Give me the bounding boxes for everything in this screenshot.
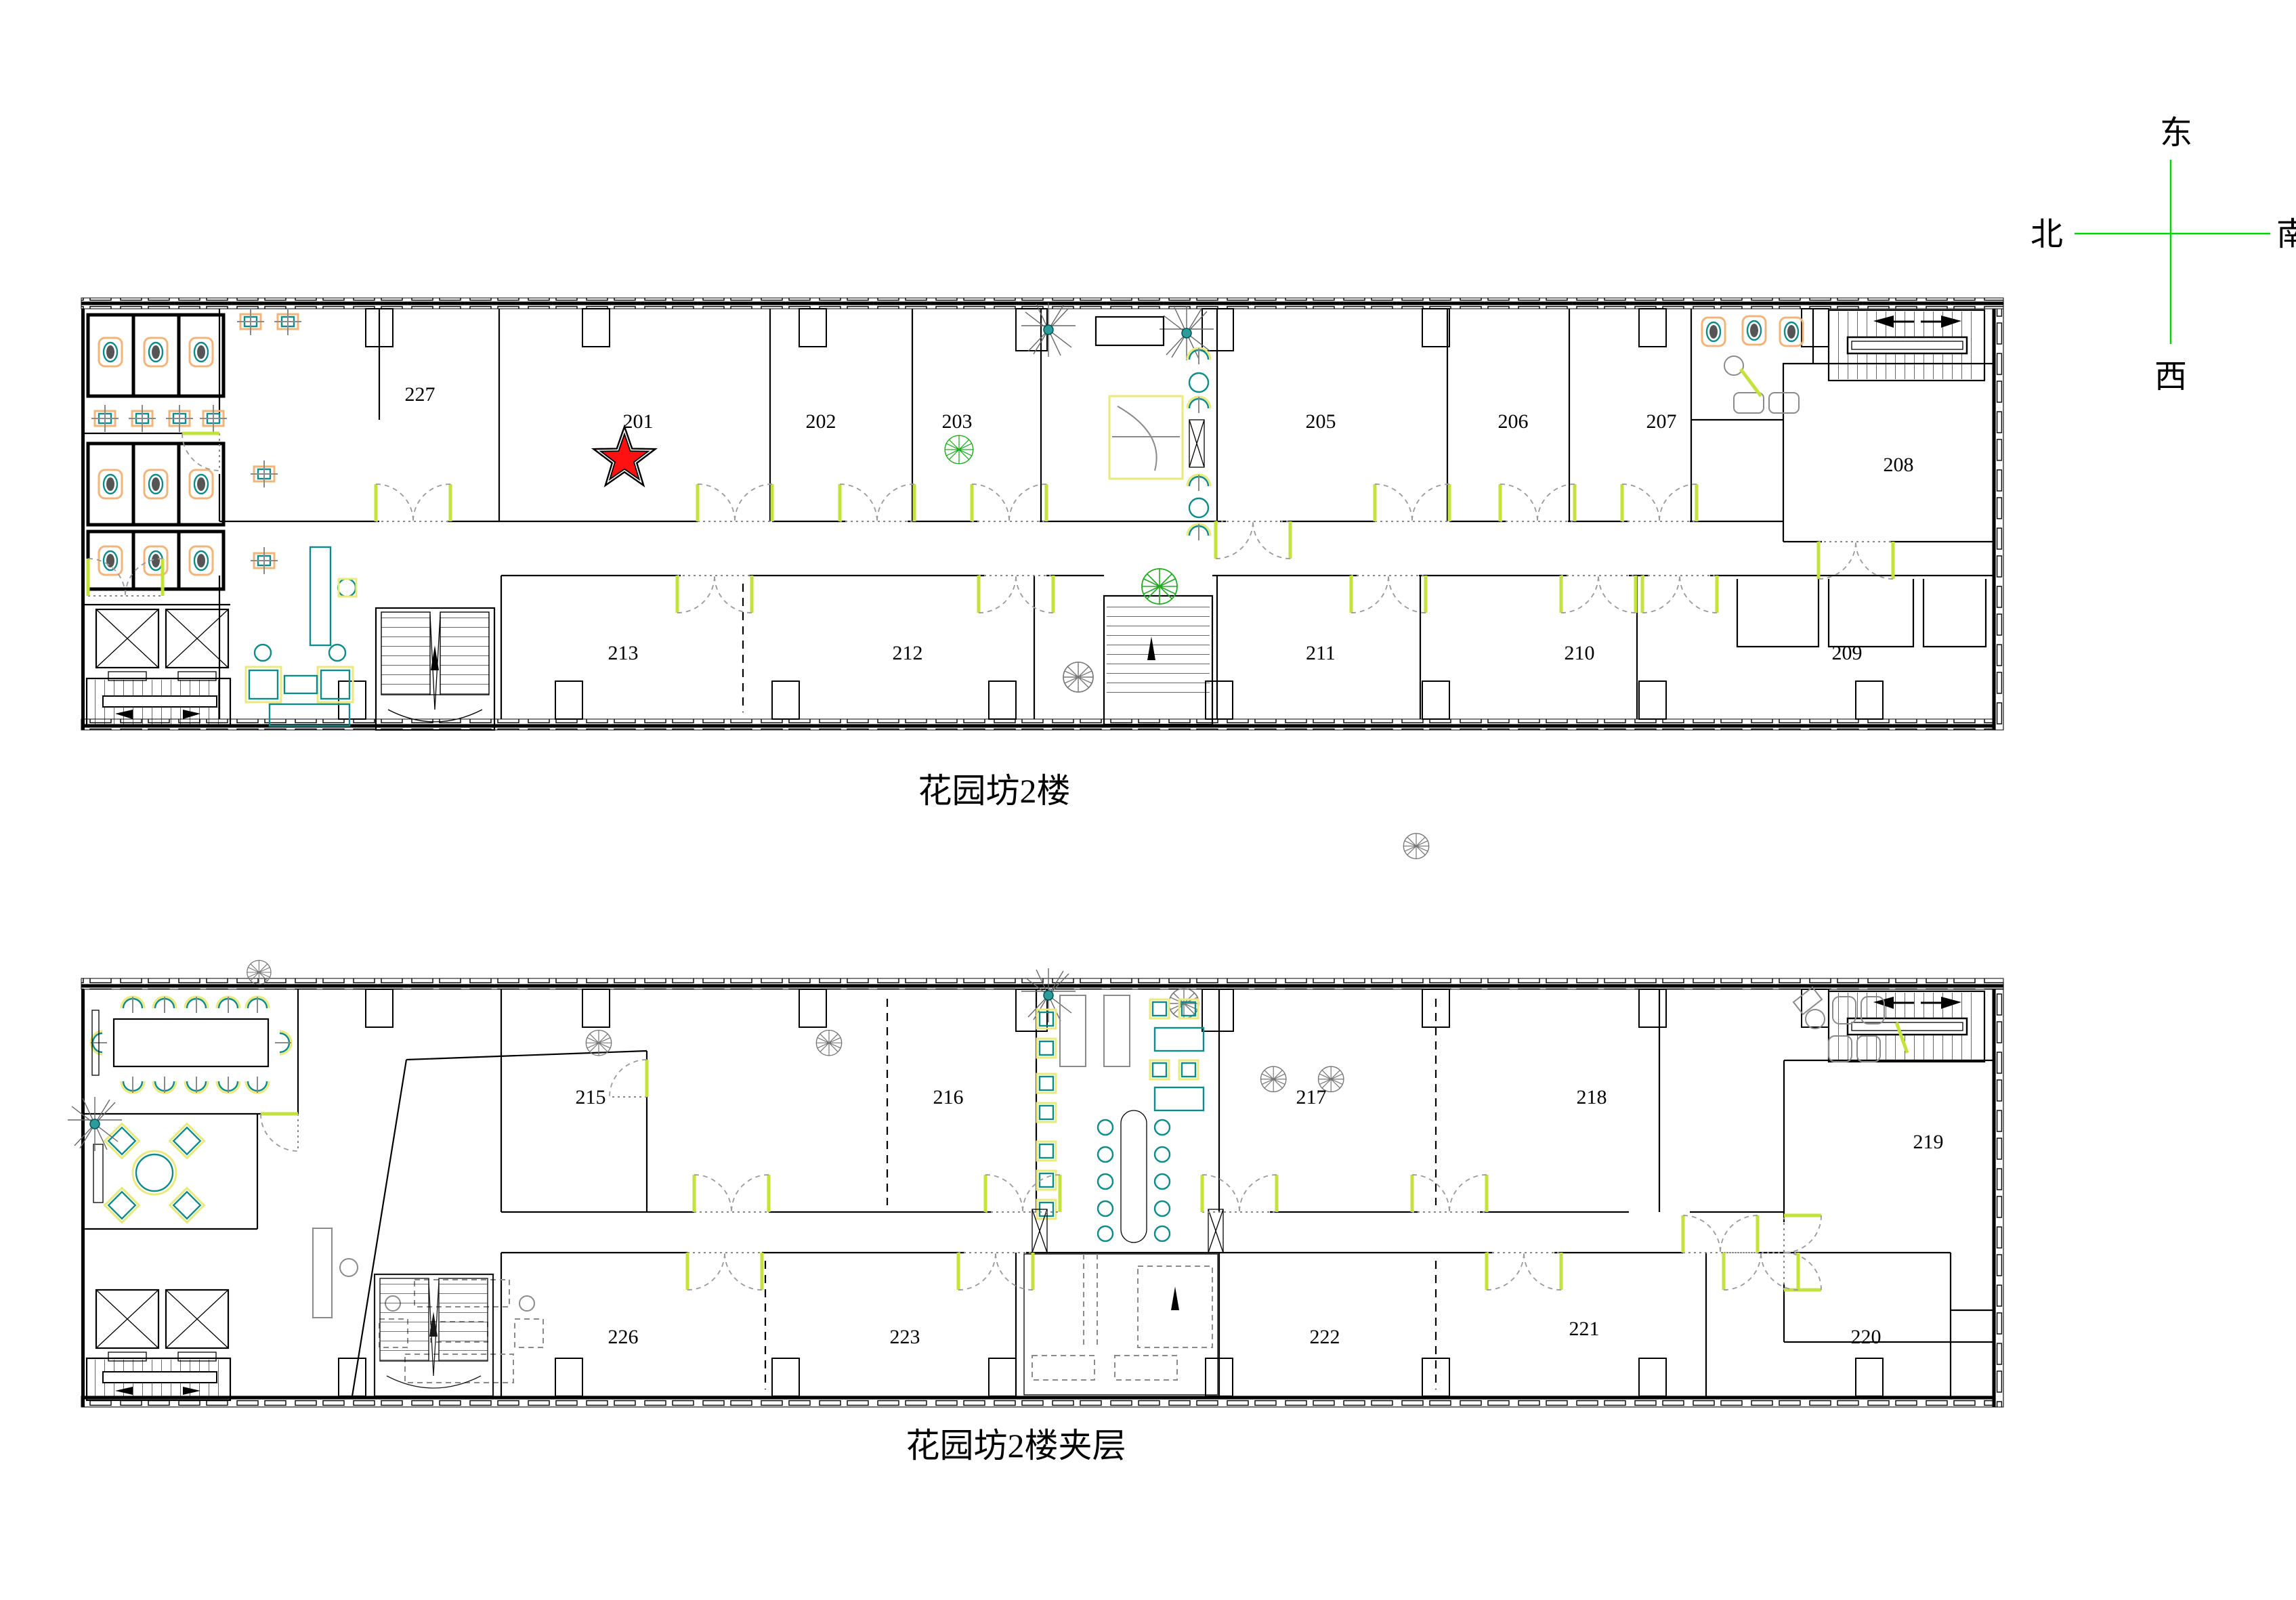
- room-label-217: 217: [1296, 1086, 1327, 1108]
- room-label-211: 211: [1306, 642, 1336, 664]
- room-label-219: 219: [1913, 1131, 1944, 1153]
- mezzanine-elevators: [96, 1290, 228, 1361]
- floor2-escalator: [1829, 310, 1984, 381]
- room-label-215: 215: [576, 1086, 606, 1108]
- mezzanine-stairs-left: [87, 1358, 230, 1400]
- mezzanine-scissor-stair: [375, 1274, 493, 1396]
- mezzanine-sitting-room: [68, 1097, 257, 1229]
- compass-west-label: 西: [2154, 359, 2187, 395]
- mezzanine-plan: 215 216 217 218 219 226 223 222 221 220 …: [68, 834, 2003, 1465]
- floor2-washroom-right: [1702, 316, 1803, 413]
- room-label-210: 210: [1565, 642, 1595, 664]
- mezzanine-columns: [339, 989, 1883, 1396]
- room-label-218: 218: [1577, 1086, 1607, 1108]
- floor2-washrooms: [84, 308, 301, 605]
- floor2-title: 花园坊2楼: [918, 772, 1071, 810]
- mezzanine-exterior-walls: [81, 978, 2003, 1407]
- compass-east-label: 东: [2160, 115, 2192, 151]
- mezzanine-conference-room: [84, 989, 298, 1114]
- room-label-220: 220: [1851, 1326, 1882, 1348]
- compass-cross-icon: [2075, 160, 2270, 344]
- floor2-plan: 227 201 202 203 205 206 207 208 213 212 …: [81, 298, 2003, 810]
- compass-north-label: 北: [2031, 217, 2063, 253]
- floor2-door-icons: [88, 433, 1893, 613]
- location-star-marker: [593, 427, 655, 485]
- room-label-209: 209: [1832, 642, 1863, 664]
- room-label-221: 221: [1569, 1318, 1600, 1340]
- compass: 东 南 西 北: [2031, 115, 2296, 395]
- room-label-207: 207: [1646, 410, 1677, 433]
- compass-south-label: 南: [2276, 217, 2296, 253]
- floor2-exterior-walls: [81, 298, 2003, 730]
- floorplan-sheet: 227 201 202 203 205 206 207 208 213 212 …: [0, 0, 2296, 1600]
- mezzanine-plant-icons: [586, 834, 1428, 1092]
- room-label-205: 205: [1306, 410, 1336, 433]
- room-label-203: 203: [942, 410, 973, 433]
- room-label-227: 227: [405, 383, 435, 406]
- room-label-201: 201: [623, 410, 654, 433]
- mezzanine-cafe: [1021, 968, 1223, 1253]
- floor2-atrium: [1021, 303, 1214, 540]
- mezzanine-room-labels: 215 216 217 218 219 226 223 222 221 220: [576, 1086, 1944, 1348]
- room-label-208: 208: [1884, 454, 1914, 476]
- floor2-elevators: [96, 609, 228, 680]
- floor2-stairs-left: [87, 678, 230, 726]
- floor2-sofa-set: [246, 645, 353, 726]
- room-label-216: 216: [933, 1086, 964, 1108]
- mezzanine-center-stair: [1024, 1254, 1218, 1395]
- mezzanine-reception-desk: [247, 960, 358, 1318]
- room-label-212: 212: [893, 642, 923, 664]
- room-label-222: 222: [1310, 1326, 1340, 1348]
- floor2-reception-desk: [310, 547, 356, 645]
- mezzanine-title: 花园坊2楼夹层: [906, 1427, 1126, 1465]
- room-label-213: 213: [608, 642, 639, 664]
- room-label-202: 202: [806, 410, 836, 433]
- floor2-scissor-stair: [376, 608, 494, 730]
- room-label-223: 223: [890, 1326, 920, 1348]
- room-label-206: 206: [1498, 410, 1529, 433]
- room-label-226: 226: [608, 1326, 639, 1348]
